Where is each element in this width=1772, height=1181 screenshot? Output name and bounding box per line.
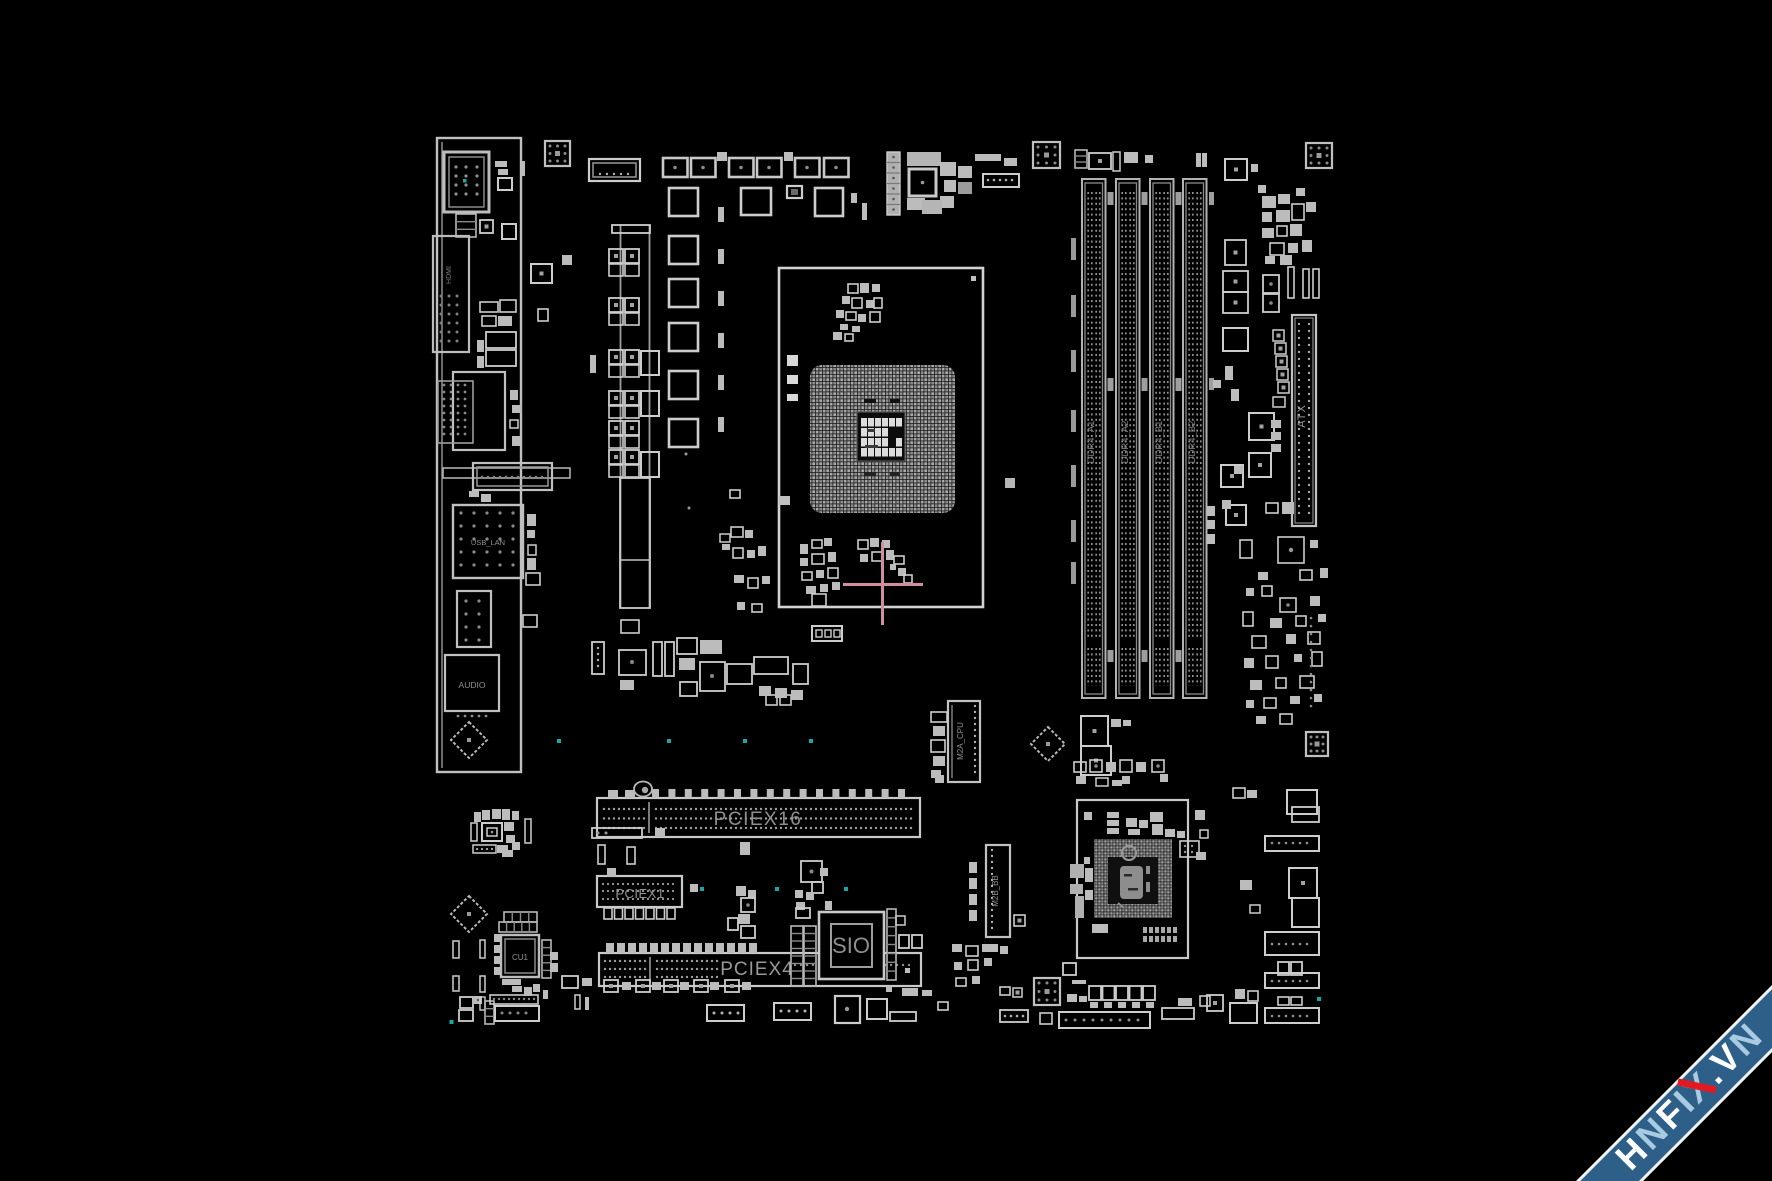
svg-text:CU1: CU1 — [512, 953, 529, 962]
svg-text:DDR4_A1: DDR4_A1 — [1086, 421, 1097, 464]
svg-text:M2B_BB: M2B_BB — [991, 875, 1000, 907]
svg-text:HDMI: HDMI — [446, 266, 453, 284]
svg-text:M2A_CPU: M2A_CPU — [956, 722, 965, 760]
svg-text:DDR4_B2: DDR4_B2 — [1187, 421, 1198, 464]
svg-text:SIO: SIO — [832, 933, 870, 958]
svg-text:DDR4_A2: DDR4_A2 — [1120, 421, 1131, 464]
svg-text:PCIEX16: PCIEX16 — [714, 809, 803, 830]
svg-text:PCIEX1: PCIEX1 — [615, 886, 664, 901]
svg-text:ATX: ATX — [1296, 404, 1308, 428]
svg-text:USB_LAN: USB_LAN — [471, 538, 505, 547]
svg-text:AUDIO: AUDIO — [459, 680, 486, 690]
svg-text:DDR4_B1: DDR4_B1 — [1154, 421, 1165, 464]
svg-text:PCIEX4: PCIEX4 — [720, 959, 794, 980]
